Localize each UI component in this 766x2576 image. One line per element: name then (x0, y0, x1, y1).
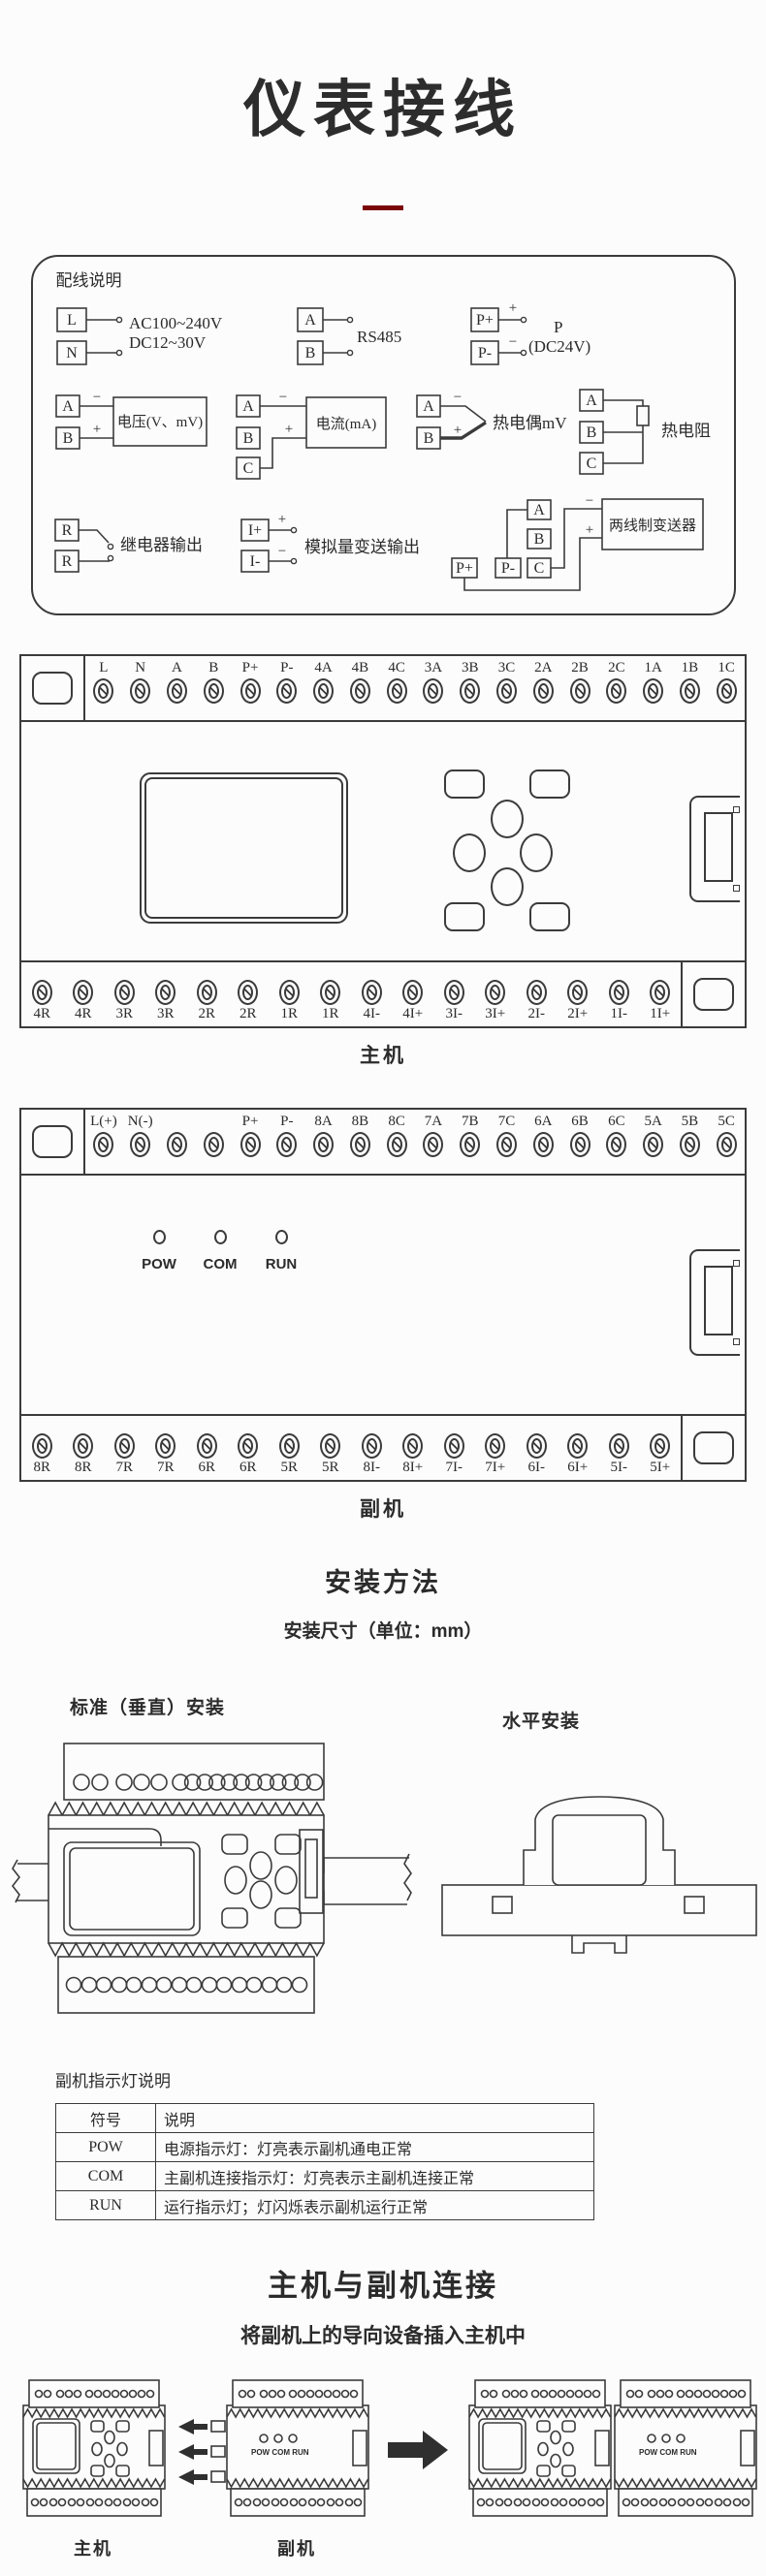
current-plus: + (284, 422, 292, 437)
relay-r2: R (61, 553, 72, 570)
screw-icon (567, 1433, 588, 1459)
terminal: 1A (635, 656, 672, 720)
screw-icon (609, 1433, 629, 1459)
rs485-a-label: A (304, 312, 316, 329)
tc-a: A (423, 398, 434, 415)
host-device: L N A B P+ P- 4A (19, 654, 747, 1028)
terminal: 4A (305, 656, 342, 720)
terminal-label: 7I+ (485, 1459, 505, 1477)
terminal-label: 2R (198, 1005, 215, 1023)
connector-notch (733, 1260, 740, 1267)
screw-icon (643, 1132, 663, 1157)
corner-pill-icon (32, 672, 73, 705)
install-labels: 标准（垂直）安装 水平安装 (0, 1693, 766, 1722)
screw-icon (114, 980, 135, 1005)
connector-notch (733, 885, 740, 892)
led-column: RUN (258, 1230, 304, 1272)
terminal: 8R (63, 1416, 105, 1480)
key-top-left[interactable] (444, 770, 485, 799)
terminal: 6R (186, 1416, 228, 1480)
rs485-label: RS485 (357, 328, 401, 346)
host-caption: 主机 (0, 1040, 766, 1069)
wiring-box-title: 配线说明 (56, 267, 122, 291)
terminal-label: 2B (571, 659, 589, 677)
tc-label: 热电偶mV (493, 414, 567, 432)
terminal-label: 1R (280, 1005, 298, 1023)
terminal-label: 4R (33, 1005, 50, 1023)
rtd-b: B (586, 424, 596, 441)
screw-icon (570, 1132, 590, 1157)
screw-icon (276, 1132, 297, 1157)
terminal-label: 6R (239, 1459, 257, 1477)
screw-icon (460, 1132, 480, 1157)
screw-icon (527, 1433, 547, 1459)
screw-icon (130, 1132, 150, 1157)
led-desc-cell: 主副机连接指示灯：灯亮表示主副机连接正常 (156, 2162, 594, 2191)
terminal: 2C (598, 656, 635, 720)
screw-icon (423, 678, 443, 704)
terminal: 4R (63, 962, 105, 1026)
terminal: 6B (561, 1110, 598, 1174)
terminal: 6A (525, 1110, 561, 1174)
terminal-label: 5C (718, 1113, 735, 1131)
terminal-label: 8A (314, 1113, 332, 1131)
analog-ip: I+ (247, 522, 261, 539)
key-up[interactable] (491, 800, 524, 838)
mini-host-combined (469, 2380, 611, 2516)
terminal: 5B (672, 1110, 709, 1174)
dc24v-label: (DC24V) (528, 337, 590, 356)
terminal: 3R (145, 962, 187, 1026)
combine-arrow-icon (388, 2431, 448, 2469)
corner-pill-icon (693, 978, 734, 1011)
terminal-label: 7R (115, 1459, 133, 1477)
led-label: RUN (266, 1256, 298, 1272)
minus-mark: − (508, 334, 516, 350)
terminal-label: 7I- (446, 1459, 463, 1477)
screw-icon (240, 678, 261, 704)
key-top-right[interactable] (529, 770, 570, 799)
terminal: 6I+ (558, 1416, 599, 1480)
rs485-b-label: B (304, 345, 315, 361)
tc-b: B (423, 430, 433, 447)
terminal-label: 5B (682, 1113, 699, 1131)
tx-pm: P- (500, 560, 514, 577)
screw-icon (73, 980, 93, 1005)
terminal: 4I- (351, 962, 393, 1026)
terminal: 1B (672, 656, 709, 720)
terminal: 8C (378, 1110, 415, 1174)
terminal-label: 4I- (364, 1005, 381, 1023)
terminal-label: 7C (498, 1113, 516, 1131)
vertical-install-figure (4, 1738, 423, 2028)
header-symbol: 符号 (56, 2104, 156, 2133)
screw-icon (527, 980, 547, 1005)
pplus-label: P+ (476, 312, 494, 329)
sub-bottom-terminals: 8R 8R 7R 7R 6R 6R 5R (21, 1416, 681, 1480)
screw-icon (155, 980, 176, 1005)
screw-icon (680, 678, 700, 704)
terminal-label: 3I- (446, 1005, 463, 1023)
screw-icon (387, 1132, 407, 1157)
connection-host-label: 主机 (74, 2535, 112, 2560)
terminal: L(+) (85, 1110, 122, 1174)
screw-icon (313, 1132, 334, 1157)
host-keypad (444, 767, 570, 933)
screw-icon (362, 1433, 382, 1459)
terminal: 8I- (351, 1416, 393, 1480)
screw-icon (609, 980, 629, 1005)
screw-icon (402, 1433, 423, 1459)
terminal: 7C (489, 1110, 526, 1174)
sub-corner-top-left (21, 1110, 85, 1174)
terminal: 8I+ (393, 1416, 434, 1480)
sub-device: L(+) N(-) P+ P- 8A (19, 1108, 747, 1482)
terminal-label: N(-) (128, 1113, 153, 1131)
terminal: 2R (228, 962, 270, 1026)
terminal-label: 4I+ (402, 1005, 423, 1023)
tx-a: A (533, 502, 545, 518)
terminal: 1I+ (640, 962, 682, 1026)
sub-indicator-leds: POW COM RUN (136, 1230, 304, 1272)
terminal-label: 3A (425, 659, 442, 677)
led-column: POW (136, 1230, 182, 1272)
tx-plus: + (585, 522, 592, 538)
sub-side-connector (689, 1249, 740, 1356)
terminal-label: 2R (239, 1005, 257, 1023)
page-title: 仪表接线 (0, 60, 766, 149)
install-heading: 安装方法 (0, 1561, 766, 1599)
terminal-label: 8B (352, 1113, 369, 1131)
terminal: 4I+ (393, 962, 434, 1026)
sub-corner-bottom-right (681, 1416, 745, 1480)
terminal: 1C (708, 656, 745, 720)
screw-icon (485, 1433, 505, 1459)
terminal: 2B (561, 656, 598, 720)
plus-mark: + (508, 300, 516, 316)
terminal-label: 8I+ (402, 1459, 423, 1477)
terminal: P- (269, 1110, 305, 1174)
tx-minus: − (585, 493, 592, 509)
connector-slot (704, 1266, 733, 1335)
connection-figure: POW COM RUN (0, 2369, 766, 2531)
screw-icon (167, 678, 187, 704)
terminal: 4C (378, 656, 415, 720)
terminal: 7I+ (475, 1416, 517, 1480)
terminal-label: 2A (534, 659, 552, 677)
terminal-label: 2I+ (567, 1005, 588, 1023)
terminal: 7B (452, 1110, 489, 1174)
tx-b: B (533, 531, 544, 548)
led-table: 符号 说明 POW 电源指示灯：灯亮表示副机通电正常 COM 主副机连接指示灯：… (55, 2103, 594, 2220)
wiring-diagram: L N AC100~240V DC12~30V A B RS485 P+ + P… (33, 265, 734, 610)
terminal-label: 5I+ (650, 1459, 670, 1477)
screw-icon (313, 678, 334, 704)
voltage-b: B (62, 430, 73, 447)
corner-pill-icon (693, 1431, 734, 1464)
screw-icon (567, 980, 588, 1005)
tx-label: 两线制变送器 (608, 518, 695, 534)
terminal: N (122, 656, 159, 720)
relay-label: 继电器输出 (120, 536, 203, 554)
terminal-label: P+ (242, 659, 259, 677)
terminal-label: 6I+ (567, 1459, 588, 1477)
terminal-label: L (99, 659, 108, 677)
screw-icon (350, 1132, 370, 1157)
terminal-label: 1I- (611, 1005, 628, 1023)
rtd-a: A (586, 393, 597, 409)
terminal-label: 2I- (528, 1005, 546, 1023)
header-desc: 说明 (156, 2104, 594, 2133)
connection-figure-wrap: POW COM RUN 主机 副机 (0, 2369, 766, 2562)
terminal: 6C (598, 1110, 635, 1174)
screw-icon (570, 678, 590, 704)
current-a: A (242, 398, 254, 415)
page: 仪表接线 配线说明 L N AC100~240V DC12~30V A B RS… (0, 0, 766, 2576)
tc-minus: − (453, 390, 461, 405)
terminal: L (85, 656, 122, 720)
screw-icon (276, 678, 297, 704)
terminal: 1R (310, 962, 352, 1026)
screw-icon (279, 980, 300, 1005)
analog-label: 模拟量变送输出 (304, 538, 420, 556)
mini-host-standalone (23, 2380, 165, 2516)
voltage-a: A (62, 398, 74, 415)
screw-icon (238, 980, 258, 1005)
wiring-description-box: 配线说明 L N AC100~240V DC12~30V A B RS485 P… (31, 255, 736, 615)
led-symbol-cell: POW (56, 2133, 156, 2162)
terminal-label: 6R (198, 1459, 215, 1477)
connection-subheading: 将副机上的导向设备插入主机中 (0, 2320, 766, 2349)
terminal-label: 8R (33, 1459, 50, 1477)
screw-icon (402, 980, 423, 1005)
terminal-label: A (172, 659, 182, 677)
terminal-label: 8R (75, 1459, 92, 1477)
terminal: 5R (310, 1416, 352, 1480)
terminal-label: 5A (644, 1113, 661, 1131)
terminal: 8A (305, 1110, 342, 1174)
led-table-title: 副机指示灯说明 (55, 2067, 766, 2091)
screw-icon (238, 1433, 258, 1459)
host-display-screen (144, 777, 343, 919)
host-body (21, 722, 745, 960)
terminal: P- (269, 656, 305, 720)
ac-range-label: AC100~240V (129, 314, 223, 332)
terminal-label: 3R (157, 1005, 175, 1023)
led-desc-cell: 运行指示灯；灯闪烁表示副机运行正常 (156, 2191, 594, 2220)
screw-icon (204, 678, 224, 704)
terminal: 2I+ (558, 962, 599, 1026)
screw-icon (485, 980, 505, 1005)
screw-icon (496, 678, 517, 704)
terminal-label: 3C (498, 659, 516, 677)
terminal: 3I- (433, 962, 475, 1026)
terminal-label: 1R (322, 1005, 339, 1023)
terminal: 5R (269, 1416, 310, 1480)
host-display (140, 772, 348, 924)
screw-icon (423, 1132, 443, 1157)
led-symbol-cell: RUN (56, 2191, 156, 2220)
terminal: 5I- (598, 1416, 640, 1480)
terminal-label: 6B (571, 1113, 589, 1131)
terminal: 3I+ (475, 962, 517, 1026)
led-icon (275, 1230, 288, 1244)
sub-top-terminals: L(+) N(-) P+ P- 8A (85, 1110, 745, 1174)
screw-icon (650, 1433, 670, 1459)
terminal: 7R (104, 1416, 145, 1480)
connector-notch (733, 1338, 740, 1345)
screw-icon (350, 678, 370, 704)
screw-icon (114, 1433, 135, 1459)
terminal: 7I- (433, 1416, 475, 1480)
pminus-label: P- (477, 345, 491, 361)
mini-sub-standalone (227, 2380, 368, 2516)
screw-icon (320, 1433, 340, 1459)
terminal: 7A (415, 1110, 452, 1174)
screw-icon (240, 1132, 261, 1157)
terminal: 3B (452, 656, 489, 720)
install-dimension-subheading: 安装尺寸（单位：mm） (0, 1617, 766, 1643)
host-top-terminals: L N A B P+ P- 4A (85, 656, 745, 720)
terminal: 3A (415, 656, 452, 720)
led-symbol-cell: COM (56, 2162, 156, 2191)
terminal: 1R (269, 962, 310, 1026)
screw-icon (93, 1132, 113, 1157)
host-corner-top-left (21, 656, 85, 720)
led-table-row: POW 电源指示灯：灯亮表示副机通电正常 (56, 2133, 594, 2162)
rtd-resistor (637, 406, 649, 425)
led-table-row: RUN 运行指示灯；灯闪烁表示副机运行正常 (56, 2191, 594, 2220)
key-left[interactable] (453, 833, 486, 872)
terminal-label: 1I+ (650, 1005, 670, 1023)
current-label: 电流(mA) (315, 416, 376, 432)
terminal: 1I- (598, 962, 640, 1026)
current-b: B (242, 430, 253, 447)
current-minus: − (278, 390, 286, 405)
terminal (195, 1110, 232, 1174)
screw-icon (130, 678, 150, 704)
terminal: 6I- (516, 1416, 558, 1480)
terminal: 5C (708, 1110, 745, 1174)
screw-icon (717, 1132, 737, 1157)
terminal-label: P- (280, 659, 293, 677)
dc-range-label: DC12~30V (129, 333, 207, 352)
terminal: 5I+ (640, 1416, 682, 1480)
key-bottom-left[interactable] (444, 902, 485, 931)
terminal-label: 3B (462, 659, 479, 677)
terminal: 2A (525, 656, 561, 720)
terminal-label: 3I+ (485, 1005, 505, 1023)
screw-icon (643, 678, 663, 704)
screw-icon (362, 980, 382, 1005)
terminal-label: 6A (534, 1113, 552, 1131)
host-bottom-terminals: 4R 4R 3R 3R 2R 2R 1R (21, 962, 681, 1026)
screw-icon (606, 678, 626, 704)
terminal-label: B (208, 659, 218, 677)
horizontal-install-label: 水平安装 (502, 1707, 580, 1733)
connector-slot (704, 812, 733, 882)
terminal-label: 7R (157, 1459, 175, 1477)
screw-icon (717, 678, 737, 704)
key-down[interactable] (491, 867, 524, 906)
key-right[interactable] (520, 833, 553, 872)
terminal-label: P- (280, 1113, 293, 1131)
screw-icon (279, 1433, 300, 1459)
terminal-label: 6I- (528, 1459, 546, 1477)
connection-heading: 主机与副机连接 (0, 2261, 766, 2305)
led-table-row: COM 主副机连接指示灯：灯亮表示主副机连接正常 (56, 2162, 594, 2191)
terminal: 8R (21, 1416, 63, 1480)
screw-icon (680, 1132, 700, 1157)
terminal-label: 4B (352, 659, 369, 677)
terminal-label: 1C (718, 659, 735, 677)
terminal: A (159, 656, 196, 720)
sub-body: POW COM RUN (21, 1176, 745, 1414)
screw-icon (444, 1433, 464, 1459)
terminal: P+ (232, 656, 269, 720)
terminal: 7R (145, 1416, 187, 1480)
terminal-label: P+ (242, 1113, 259, 1131)
p-label: P (554, 318, 562, 336)
screw-icon (444, 980, 464, 1005)
terminal-box-N-label: N (66, 345, 78, 361)
terminal-label: 8I- (364, 1459, 381, 1477)
terminal: 3R (104, 962, 145, 1026)
screw-icon (204, 1132, 224, 1157)
key-bottom-right[interactable] (529, 902, 570, 931)
relay-r1: R (61, 522, 72, 539)
terminal: 4B (341, 656, 378, 720)
screw-icon (93, 678, 113, 704)
terminal-label: 4A (314, 659, 332, 677)
led-icon (153, 1230, 166, 1244)
sub-caption: 副机 (0, 1493, 766, 1523)
horizontal-install-figure (438, 1780, 760, 1974)
screw-icon (197, 1433, 217, 1459)
led-table-header-row: 符号 说明 (56, 2104, 594, 2133)
terminal-label: 7A (425, 1113, 442, 1131)
voltage-label: 电压(V、mV) (116, 414, 202, 430)
terminal: 4R (21, 962, 63, 1026)
terminal: 6R (228, 1416, 270, 1480)
terminal: B (195, 656, 232, 720)
terminal: 5A (635, 1110, 672, 1174)
terminal-label: 5R (322, 1459, 339, 1477)
terminal-label: 1A (644, 659, 661, 677)
screw-icon (32, 1433, 52, 1459)
terminal-label: N (135, 659, 145, 677)
terminal-label: 2C (608, 659, 625, 677)
red-divider (363, 205, 403, 210)
terminal-label: 5R (280, 1459, 298, 1477)
screw-icon (496, 1132, 517, 1157)
screw-icon (650, 980, 670, 1005)
led-icon (214, 1230, 227, 1244)
terminal-label: 8C (388, 1113, 405, 1131)
led-desc-cell: 电源指示灯：灯亮表示副机通电正常 (156, 2133, 594, 2162)
install-figures (0, 1738, 766, 2038)
terminal: P+ (232, 1110, 269, 1174)
terminal-label: 4C (388, 659, 405, 677)
terminal-label: 3R (115, 1005, 133, 1023)
screw-icon (155, 1433, 176, 1459)
terminal-label: 6C (608, 1113, 625, 1131)
current-c: C (242, 460, 253, 477)
screw-icon (387, 678, 407, 704)
terminal: 3C (489, 656, 526, 720)
screw-icon (167, 1132, 187, 1157)
tx-pp: P+ (456, 560, 473, 577)
